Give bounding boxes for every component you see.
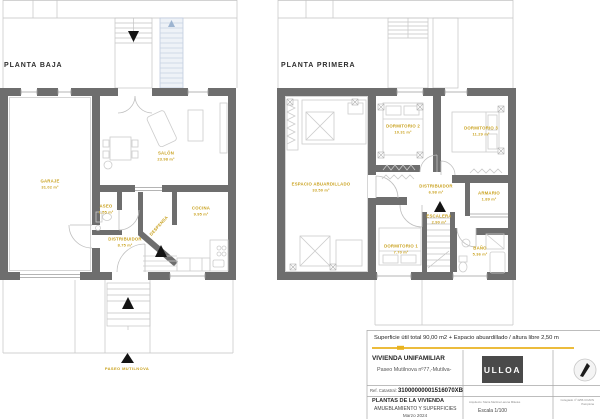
room-area: 10.31 m² bbox=[386, 129, 420, 134]
sheet-title: PLANTAS DE LA VIVIENDA bbox=[372, 398, 444, 404]
room-area: 2.90 m² bbox=[426, 219, 451, 224]
room-area: 9.95 m² bbox=[192, 211, 210, 216]
room-area: 8.75 m² bbox=[108, 242, 141, 247]
ulloa-logo-text: ULLOA bbox=[482, 356, 523, 383]
room-label-garaje: GARAJE 31.02 m² bbox=[40, 178, 59, 189]
room-label-distribuidor-primera: DISTRIBUIDOR 6.98 m² bbox=[419, 183, 452, 194]
room-label-dormitorio-3: DORMITORIO 3 11.29 m² bbox=[464, 125, 498, 136]
room-name: ESPACIO ABUARDILLADO bbox=[292, 181, 351, 186]
room-name: ARMARIO bbox=[478, 190, 500, 195]
surface-note: Superficie útil total 90,00 m2 + Espacio… bbox=[374, 335, 559, 341]
room-area: 1.55 m² bbox=[99, 209, 114, 214]
primera-stairwell bbox=[427, 218, 450, 268]
room-label-cocina: COCINA 9.95 m² bbox=[192, 205, 210, 216]
room-name: DORMITORIO 2 bbox=[386, 123, 420, 128]
room-name: DORMITORIO 1 bbox=[384, 243, 418, 248]
room-area: 11.29 m² bbox=[464, 131, 498, 136]
project-title: VIVIENDA UNIFAMILIAR bbox=[372, 355, 445, 362]
room-area: 31.02 m² bbox=[40, 184, 59, 189]
room-label-armario: ARMARIO 1.89 m² bbox=[478, 190, 500, 201]
baja-garden-lines bbox=[3, 280, 233, 353]
room-label-distribuidor-baja: DISTRIBUIDOR 8.75 m² bbox=[108, 236, 141, 247]
primera-terrace-lines bbox=[375, 280, 513, 325]
plan-title-planta-baja: PLANTA BAJA bbox=[4, 62, 63, 69]
baja-walls bbox=[0, 88, 236, 280]
baja-porch-arrow bbox=[122, 297, 134, 309]
room-name: SALÓN bbox=[158, 150, 174, 155]
street-entry-arrow bbox=[121, 353, 134, 363]
room-name: ESCALERA bbox=[426, 213, 451, 218]
room-name: ASEO bbox=[100, 203, 113, 208]
architect-line: Arquitecto: María Martínez-arena Mikeles bbox=[469, 400, 520, 404]
room-name: DISTRIBUIDOR bbox=[419, 183, 452, 188]
cadastral-label: Ref. Catastral: bbox=[370, 388, 397, 393]
room-label-aseo: ASEO 1.55 m² bbox=[99, 203, 114, 214]
room-name: COCINA bbox=[192, 205, 210, 210]
room-area: 33.50 m² bbox=[292, 187, 351, 192]
primera-stair-arrow bbox=[434, 201, 446, 212]
architect-stamp-icon bbox=[574, 359, 596, 381]
room-name: DISTRIBUIDOR bbox=[108, 236, 141, 241]
room-area: 23.98 m² bbox=[157, 156, 174, 161]
room-area: 1.89 m² bbox=[478, 196, 500, 201]
room-label-espacio-abuardillado: ESPACIO ABUARDILLADO 33.50 m² bbox=[292, 181, 351, 192]
room-area: 6.98 m² bbox=[419, 189, 452, 194]
street-label: PASEO MUTILNOVA bbox=[105, 366, 149, 371]
room-label-dormitorio-2: DORMITORIO 2 10.31 m² bbox=[386, 123, 420, 134]
room-label-bano: BAÑO 5.36 m² bbox=[473, 245, 488, 256]
collegiate-line: Colegiado nº 4256 COAVN Pamplona bbox=[550, 399, 594, 406]
room-name: BAÑO bbox=[473, 245, 486, 250]
room-label-dormitorio-1: DORMITORIO 1 7.70 m² bbox=[384, 243, 418, 254]
floorplan-sheet: PLANTA BAJA PLANTA PRIMERA GARAJE 31.02 … bbox=[0, 0, 600, 419]
baja-plot-outline bbox=[3, 0, 237, 88]
cadastral-value: 31000000001516070XB bbox=[398, 388, 463, 394]
room-label-escalera: ESCALERA 2.90 m² bbox=[426, 213, 451, 224]
room-label-salon: SALÓN 23.98 m² bbox=[157, 150, 174, 161]
plan-title-planta-primera: PLANTA PRIMERA bbox=[281, 62, 355, 69]
sheet-date: Marzo 2024 bbox=[385, 413, 445, 418]
room-area: 5.36 m² bbox=[473, 251, 488, 256]
sheet-subtitle: AMUEBLAMIENTO Y SUPERFICIES bbox=[374, 406, 457, 412]
baja-stair-arrow bbox=[128, 31, 139, 42]
project-address: Paseo Mutilnova nº77,-Mutilva- bbox=[377, 367, 451, 373]
title-block-accent-mark bbox=[397, 346, 404, 350]
room-name: GARAJE bbox=[40, 178, 59, 183]
room-name: DORMITORIO 3 bbox=[464, 125, 498, 130]
room-area: 7.70 m² bbox=[384, 249, 418, 254]
scale-label: Escala 1/100 bbox=[478, 408, 507, 414]
primera-plot-outline bbox=[278, 0, 513, 88]
cadastral-reference: Ref. Catastral: 31000000001516070XB bbox=[370, 388, 463, 394]
baja-top-stair-chute bbox=[160, 18, 183, 88]
